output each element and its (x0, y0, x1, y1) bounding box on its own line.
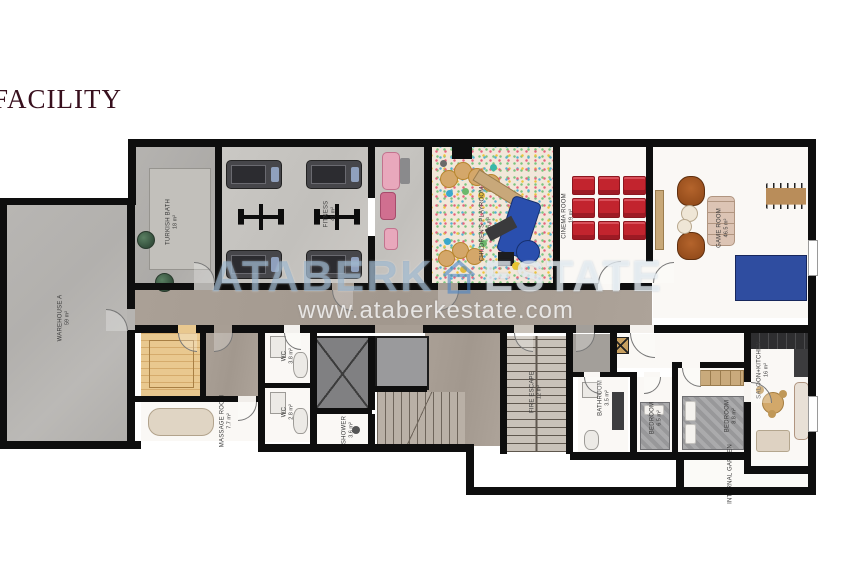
gym-equipment-pink (380, 192, 396, 220)
gym-mat (400, 158, 410, 184)
label-game-room: GAME ROOM46.5 m² (716, 208, 729, 248)
label-fitness: FITNESS41 m² (323, 201, 336, 228)
label-childrens-playroom: CHILDREN'S PLAYROOM36 m² (479, 187, 492, 262)
toilet (293, 408, 308, 434)
kitchen-counter (794, 349, 808, 377)
label-bedroom-1: BEDROOM6.5 m² (649, 402, 662, 434)
armchair (677, 176, 705, 206)
elevator (375, 336, 429, 390)
gym-equipment-pink (384, 228, 398, 250)
coffee-table (756, 430, 790, 452)
wardrobe (700, 370, 744, 386)
pillow (685, 401, 696, 421)
label-wc1: WC3.8 m² (281, 348, 294, 364)
window (808, 396, 818, 432)
page-title: FACILITY (0, 84, 122, 115)
treadmill (306, 250, 362, 279)
console-table (655, 190, 664, 250)
armchair (677, 232, 705, 260)
label-warehouse-a: WAREHOUSE A59 m² (57, 295, 70, 342)
turkish-bath-tiles (149, 168, 211, 270)
label-shower: SHOWER3.6 m² (341, 416, 354, 444)
chair (779, 390, 787, 398)
floor-plan: FACILITY (0, 0, 850, 566)
label-fire-escape: FIRE ESCAPE12 m² (529, 371, 542, 413)
toilet (584, 430, 599, 450)
massage-table (148, 408, 214, 436)
corridor-main (135, 290, 652, 325)
foosball-table (766, 183, 806, 209)
pillow (685, 424, 696, 444)
gym-machine (314, 204, 360, 230)
label-massage-room: MASSAGE ROOM7.7 m² (219, 395, 232, 447)
treadmill (226, 160, 282, 189)
treadmill (306, 160, 362, 189)
window (808, 240, 818, 276)
label-wc2: WC2.8 m² (281, 404, 294, 420)
label-bedroom-2: BEDROOM8.8 m² (724, 400, 737, 432)
pingpong-table (735, 255, 807, 301)
label-cinema-room: CINEMA ROOM19 m² (561, 193, 574, 239)
gym-equipment-pink (382, 152, 400, 190)
cinema-seats (572, 176, 646, 240)
chair (768, 410, 776, 418)
side-table (677, 219, 692, 234)
main-stairs (377, 392, 465, 446)
toilet (293, 352, 308, 378)
gym-machine (238, 204, 284, 230)
vanity (612, 392, 624, 430)
treadmill (226, 250, 282, 279)
elevator (313, 336, 372, 412)
sofa (794, 382, 809, 440)
label-turkish-bath: TURKISH BATH18 m² (165, 199, 178, 245)
cinema-seat (572, 176, 595, 195)
plant (137, 231, 155, 249)
